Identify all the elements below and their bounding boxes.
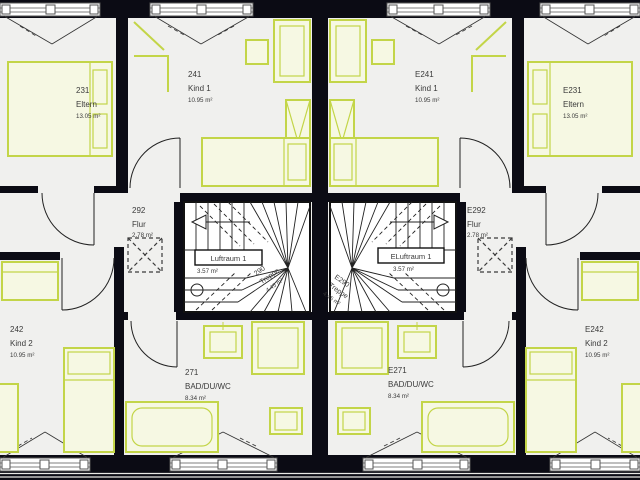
room-name: Flur xyxy=(132,220,146,229)
luftraum-area: 3.57 m² xyxy=(197,268,218,275)
room-name: Kind 1 xyxy=(415,84,438,93)
room-area: 13.05 m² xyxy=(563,113,587,120)
room-id: 292 xyxy=(132,206,146,215)
room-id: 231 xyxy=(76,86,90,95)
room-area: 13.05 m² xyxy=(76,113,100,120)
room-name: Kind 2 xyxy=(585,339,608,348)
room-area: 10.95 m² xyxy=(10,352,34,359)
room-id: E292 xyxy=(467,206,486,215)
room-id: E241 xyxy=(415,70,434,79)
luftraum-name: ELuftraum 1 xyxy=(391,252,432,261)
room-name: Eltern xyxy=(563,100,584,109)
room-area: 2.78 m² xyxy=(467,232,488,239)
room-area: 10.95 m² xyxy=(585,352,609,359)
room-name: Kind 2 xyxy=(10,339,33,348)
floor-plan-page: 231 Eltern 13.05 m² 241 Kind 1 10.95 m² … xyxy=(0,0,640,480)
room-id: E242 xyxy=(585,325,604,334)
room-area: 10.95 m² xyxy=(415,97,439,104)
luftraum-name: Luftraum 1 xyxy=(211,254,247,263)
luftraum-area: 3.57 m² xyxy=(393,266,414,273)
room-name: BAD/DU/WC xyxy=(185,382,231,391)
unit-right-geometry xyxy=(328,0,640,480)
room-name: Eltern xyxy=(76,100,97,109)
room-name: Flur xyxy=(467,220,481,229)
room-area: 8.34 m² xyxy=(388,393,409,400)
party-wall xyxy=(312,0,328,480)
room-id: 242 xyxy=(10,325,24,334)
room-area: 8.34 m² xyxy=(185,395,206,402)
unit-left-geometry xyxy=(0,0,312,480)
room-name: BAD/DU/WC xyxy=(388,380,434,389)
room-area: 2.78 m² xyxy=(132,232,153,239)
room-id: E231 xyxy=(563,86,582,95)
room-area: 10.95 m² xyxy=(188,97,212,104)
floor-plan: 231 Eltern 13.05 m² 241 Kind 1 10.95 m² … xyxy=(0,0,640,480)
room-name: Kind 1 xyxy=(188,84,211,93)
room-id: 241 xyxy=(188,70,202,79)
room-id: 271 xyxy=(185,368,199,377)
room-id: E271 xyxy=(388,366,407,375)
